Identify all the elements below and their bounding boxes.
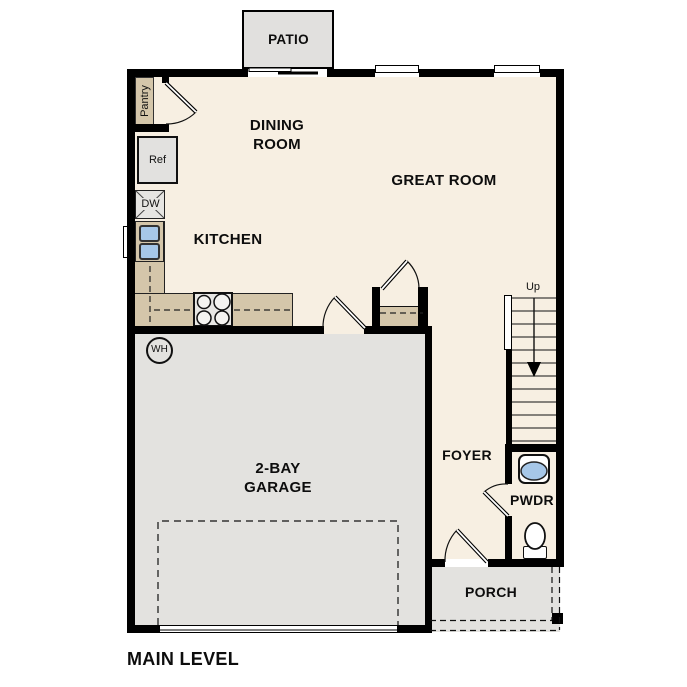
stair-rail	[504, 295, 512, 350]
wall-pantry-bottom	[127, 124, 169, 132]
great-room-label: GREAT ROOM	[369, 171, 519, 190]
wall-garage-bottom-left	[127, 625, 160, 633]
floor-plan: PATIO DINING ROOM GREAT ROOM KITCHEN 2-B…	[0, 0, 687, 687]
wall-garage-top-right	[364, 326, 432, 334]
porch-label: PORCH	[451, 584, 531, 601]
wall-left	[127, 69, 135, 633]
wall-front-right	[488, 559, 564, 567]
dining-room-label-line1: DINING	[212, 116, 342, 135]
garage-label-line1: 2-BAY	[208, 459, 348, 478]
wall-garage-top-left	[127, 326, 324, 334]
patio-label: PATIO	[243, 31, 334, 48]
dining-room-label: DINING ROOM	[212, 116, 342, 154]
stairs-up-label: Up	[518, 281, 548, 293]
pantry-label: Pantry	[134, 78, 156, 124]
great-room-window-right	[494, 65, 540, 73]
foyer-label: FOYER	[427, 447, 507, 464]
wall-front-left	[425, 559, 445, 567]
wall-top-mid2	[419, 69, 494, 77]
main-level-title: MAIN LEVEL	[127, 649, 327, 670]
wall-stairs-bottom	[505, 444, 564, 452]
pedestal-sink	[518, 454, 550, 484]
stove	[193, 292, 233, 327]
toilet-tank	[523, 546, 547, 559]
wall-stairs-knee	[506, 350, 512, 445]
wall-closet-stub-left	[372, 287, 380, 326]
great-room-window-left	[375, 65, 419, 73]
garage-door	[160, 625, 397, 633]
dining-room-label-line2: ROOM	[212, 135, 342, 154]
garage-label-line2: GARAGE	[208, 478, 348, 497]
patio-slider-opening	[248, 69, 327, 77]
water-heater-label: WH	[146, 344, 173, 355]
garage-label: 2-BAY GARAGE	[208, 459, 348, 497]
wall-top-left	[127, 69, 248, 77]
wall-pwdr-left-bottom	[505, 516, 512, 559]
dishwasher-label: DW	[138, 198, 163, 210]
porch-post	[552, 613, 563, 624]
sink-basin-bottom	[139, 243, 160, 260]
refrigerator-label: Ref	[137, 154, 178, 166]
kitchen-label: KITCHEN	[178, 230, 278, 249]
wall-closet-stub-right	[418, 287, 428, 326]
wall-top-mid1	[327, 69, 375, 77]
wall-garage-bottom-right	[397, 625, 432, 633]
pwdr-label: PWDR	[500, 492, 564, 509]
sink-basin-top	[139, 225, 160, 242]
wall-pantry-stub	[162, 69, 169, 83]
wall-garage-right	[425, 326, 432, 633]
